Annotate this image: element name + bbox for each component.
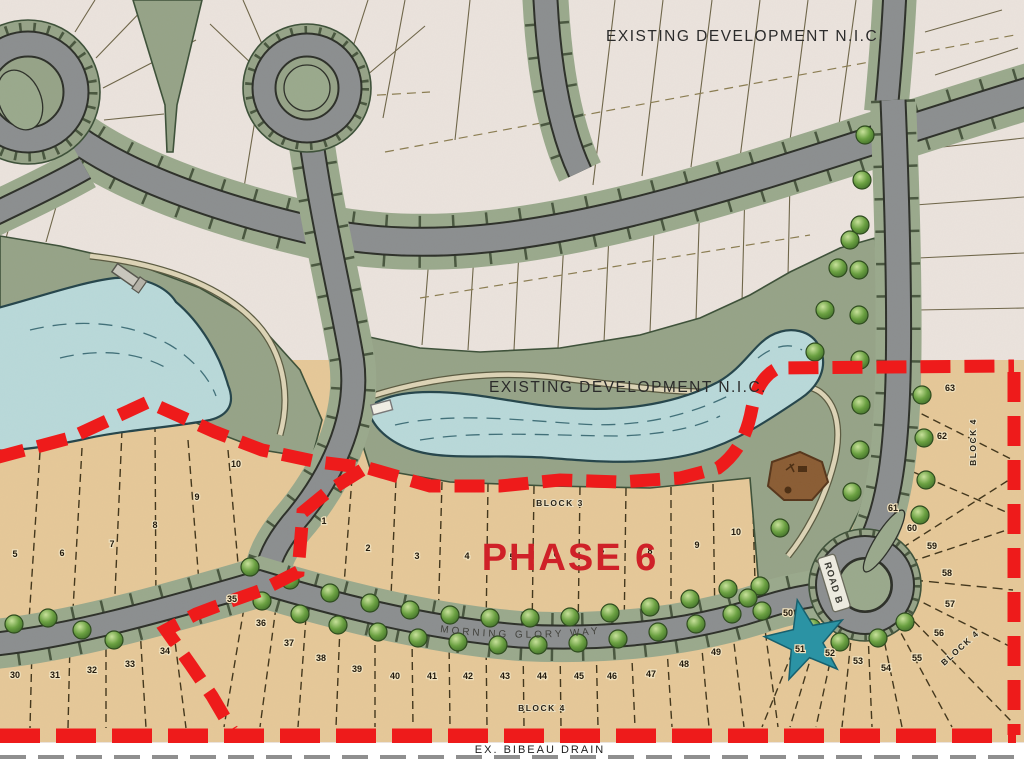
- lot-number: 54: [881, 663, 891, 673]
- lot-number: 10: [231, 459, 241, 469]
- lot-number: 51: [795, 644, 805, 654]
- lot-number: 63: [945, 383, 955, 393]
- lot-number: 36: [256, 618, 266, 628]
- lot-number: 6: [59, 548, 64, 558]
- lot-number: 3: [414, 551, 419, 561]
- block-4-label-bottom: BLOCK 4: [518, 703, 566, 713]
- lot-number: 48: [679, 659, 689, 669]
- lot-number: 34: [160, 646, 170, 656]
- lot-number: 30: [10, 670, 20, 680]
- lot-number: 62: [937, 431, 947, 441]
- lot-number: 8: [152, 520, 157, 530]
- lot-number: 2: [365, 543, 370, 553]
- lot-number: 37: [284, 638, 294, 648]
- lot-number: 33: [125, 659, 135, 669]
- lot-number: 41: [427, 671, 437, 681]
- lot-number: 59: [927, 541, 937, 551]
- lot-number: 9: [194, 492, 199, 502]
- drain-strip: EX. BIBEAU DRAIN: [0, 743, 1024, 760]
- lot-number: 35: [227, 594, 237, 604]
- lot-number: 52: [825, 648, 835, 658]
- lot-number: 4: [464, 551, 469, 561]
- site-plan-map: 5678910123456789103031323334353637383940…: [0, 0, 1024, 760]
- lot-number: 39: [352, 664, 362, 674]
- block-4-label-right: BLOCK 4: [968, 418, 978, 466]
- lot-number: 44: [537, 671, 547, 681]
- lot-number: 7: [109, 539, 114, 549]
- lot-number: 42: [463, 671, 473, 681]
- lot-number: 49: [711, 647, 721, 657]
- phase-6-label: PHASE 6: [482, 537, 659, 579]
- lot-number: 38: [316, 653, 326, 663]
- lot-number: 57: [945, 599, 955, 609]
- lot-number: 10: [731, 527, 741, 537]
- lot-number: 61: [888, 503, 898, 513]
- lot-number: 55: [912, 653, 922, 663]
- lot-number: 40: [390, 671, 400, 681]
- lot-number: 60: [907, 523, 917, 533]
- lot-number: 56: [934, 628, 944, 638]
- lot-number: 9: [694, 540, 699, 550]
- lot-number: 45: [574, 671, 584, 681]
- lot-number: 58: [942, 568, 952, 578]
- lot-number: 31: [50, 670, 60, 680]
- lot-number: 50: [783, 608, 793, 618]
- lot-number: 5: [12, 549, 17, 559]
- lot-number: 53: [853, 656, 863, 666]
- lot-number: 32: [87, 665, 97, 675]
- existing-development-label-top: EXISTING DEVELOPMENT N.I.C.: [606, 28, 884, 45]
- lot-number: 1: [321, 516, 326, 526]
- lot-number: 43: [500, 671, 510, 681]
- lot-number: 47: [646, 669, 656, 679]
- site-plan-canvas: 5678910123456789103031323334353637383940…: [0, 0, 1024, 760]
- block-3-label: BLOCK 3: [536, 498, 584, 508]
- bibeau-drain-label: EX. BIBEAU DRAIN: [475, 744, 605, 756]
- lot-number: 46: [607, 671, 617, 681]
- existing-development-label-mid: EXISTING DEVELOPMENT N.I.C.: [489, 379, 767, 396]
